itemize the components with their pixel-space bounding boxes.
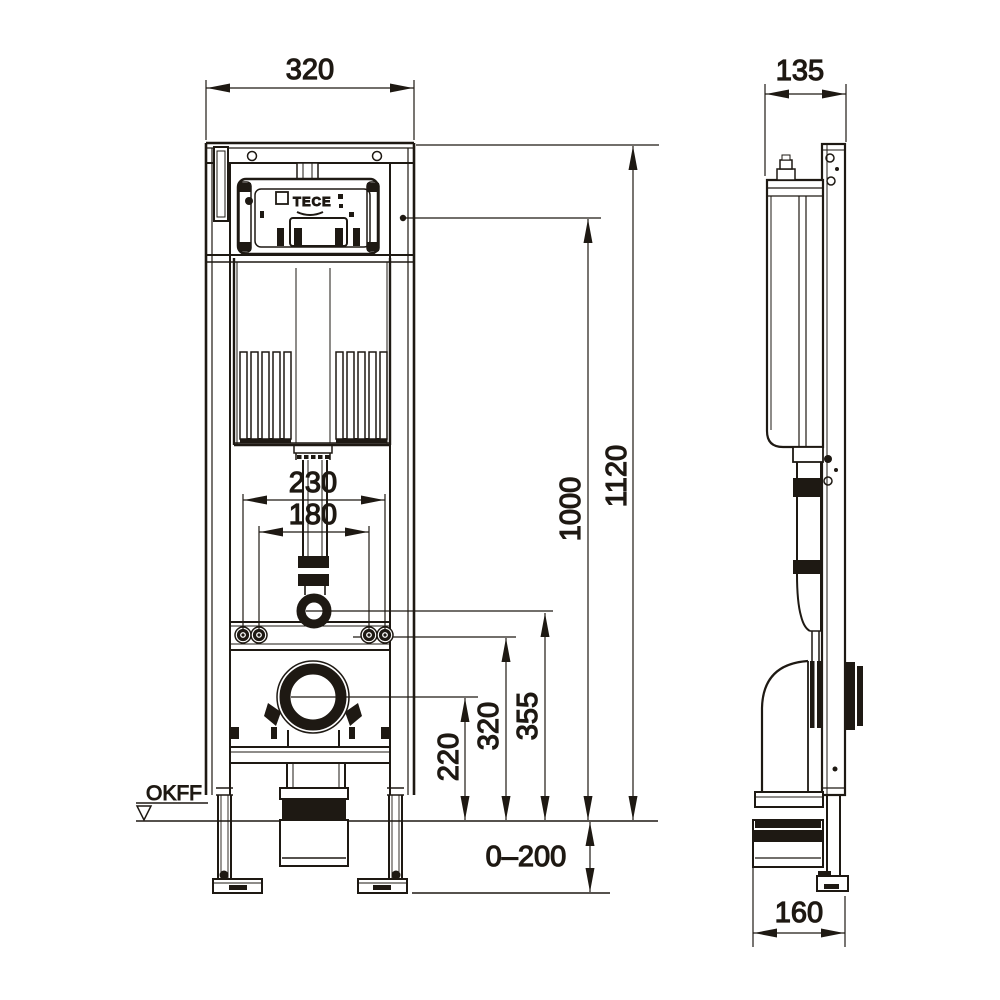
technical-drawing-page: TECE [0,0,1000,1000]
flush-plate-service-box: TECE [238,163,379,254]
level-marker-icon [137,806,151,820]
dim-label-1120: 1120 [601,445,633,507]
side-waste-bend [755,661,863,807]
dim-height-320: 320 [473,638,511,820]
dim-height-220: 220 [433,698,470,820]
tank-outlet-funnel [294,445,332,460]
dim-width-320: 320 [206,54,414,140]
tank-ribs [240,352,387,443]
side-rail [822,144,845,795]
dim-label-355: 355 [512,692,544,740]
lower-crossbar [231,747,389,763]
dim-label-220: 220 [433,733,465,781]
dim-label-width-320: 320 [286,54,334,86]
dim-height-355: 355 [512,613,550,820]
side-cistern [767,155,823,447]
fixing-bolt-crossbar [231,622,516,650]
wall-anchor-plate [214,147,228,221]
side-view [753,144,863,891]
fill-valve [777,155,795,180]
cistern-tank [234,258,390,460]
drain-outlet-connector [280,763,348,866]
side-outlet-connector [753,820,823,867]
side-flush-pipe [793,447,823,661]
box-screw-dot [245,197,253,205]
dim-label-320-height: 320 [473,702,505,750]
installation-frame-drawing: TECE [0,0,1000,1000]
dim-label-1000: 1000 [555,477,587,542]
dim-label-230: 230 [289,467,337,499]
dim-label-135: 135 [776,55,824,87]
dim-label-foot-range: 0–200 [486,841,567,873]
dim-label-180: 180 [289,499,337,531]
brand-logo-text: TECE [293,194,332,209]
front-waste-socket [846,662,855,730]
dim-width-230: 230 [243,467,385,630]
dim-foot-range: 0–200 [486,822,595,892]
floor-level-label: OKFF [146,782,202,805]
dim-label-160: 160 [775,897,823,929]
